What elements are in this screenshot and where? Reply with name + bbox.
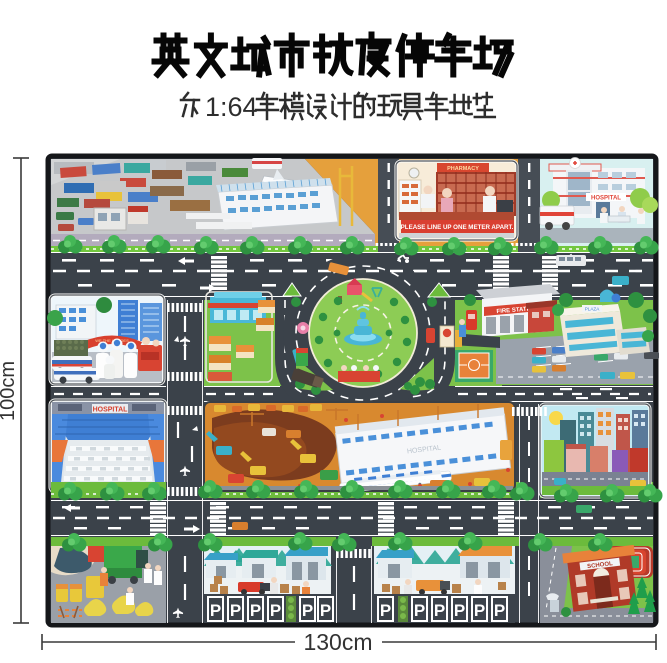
- svg-text:PLAZA: PLAZA: [585, 307, 600, 312]
- svg-text:100cm: 100cm: [0, 361, 19, 421]
- svg-text:1:64: 1:64: [205, 92, 258, 122]
- svg-text:HOSPITAL: HOSPITAL: [93, 407, 129, 414]
- svg-text:HOSPITAL: HOSPITAL: [591, 196, 621, 202]
- svg-text:PLEASE LINE UP ONE METER APART: PLEASE LINE UP ONE METER APART.: [401, 224, 514, 231]
- svg-text:130cm: 130cm: [303, 629, 372, 655]
- svg-text:PHARMACY: PHARMACY: [447, 166, 479, 172]
